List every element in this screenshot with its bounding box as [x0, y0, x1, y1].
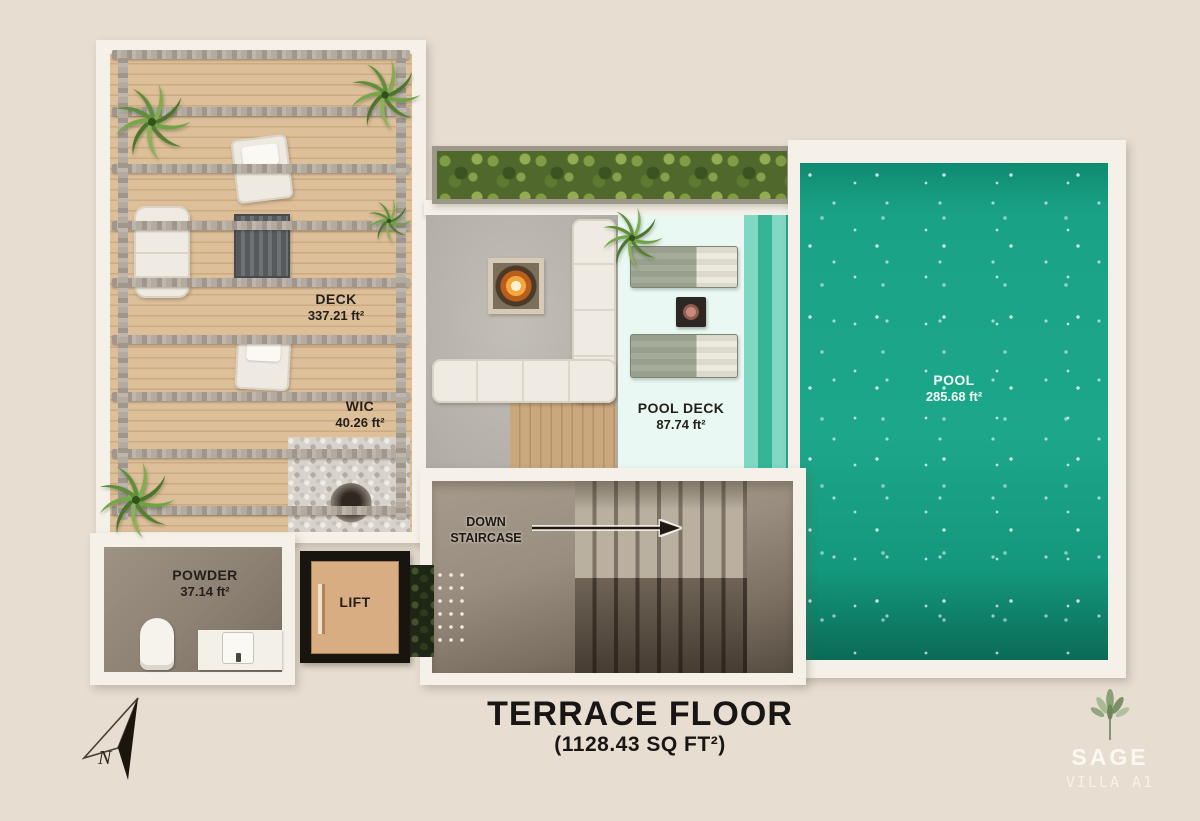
fire-pit: [488, 258, 544, 314]
plan-title-block: TERRACE FLOOR (1128.43 SQ FT²): [390, 697, 890, 757]
faucet: [236, 653, 241, 662]
page-title: TERRACE FLOOR: [390, 697, 890, 733]
palm-icon: [366, 198, 412, 244]
palm-icon: [348, 58, 422, 132]
hedge-planter: [432, 146, 792, 204]
sage-plant-icon: [1087, 688, 1133, 742]
pool-name: POOL: [800, 372, 1108, 389]
gravel-fire-bowl: [330, 483, 372, 525]
wic-label: WIC 40.26 ft²: [300, 398, 420, 430]
side-planter: [410, 565, 434, 657]
lift-label: LIFT: [300, 594, 410, 611]
wic-area: 40.26 ft²: [300, 415, 420, 430]
pool-area: 285.68 ft²: [800, 389, 1108, 404]
floor-plan-canvas: DECK 337.21 ft² WIC 40.26 ft² POOL DECK …: [0, 0, 1200, 821]
fire-pit-flame: [493, 263, 539, 309]
vanity-counter: [198, 630, 282, 670]
sink: [222, 632, 254, 664]
pool-deck-name: POOL DECK: [618, 400, 744, 417]
staircase-name: STAIRCASE: [444, 530, 528, 546]
palm-icon: [96, 460, 176, 540]
wic-name: WIC: [300, 398, 420, 415]
north-arrow-icon: N: [78, 692, 162, 780]
lift-name: LIFT: [300, 594, 410, 611]
deck-area: 337.21 ft²: [276, 308, 396, 323]
palm-icon: [112, 82, 192, 162]
deck-label: DECK 337.21 ft²: [276, 291, 396, 323]
brand-name: SAGE: [1050, 744, 1170, 771]
powder-label: POWDER 37.14 ft²: [130, 567, 280, 599]
staircase-label: DOWN STAIRCASE: [444, 514, 528, 547]
toilet: [140, 618, 174, 670]
page-title-area: (1128.43 SQ FT²): [390, 733, 890, 757]
powder-name: POWDER: [130, 567, 280, 584]
palm-icon: [600, 206, 664, 270]
stair-treads-lower: [575, 578, 747, 673]
powder-area: 37.14 ft²: [130, 584, 280, 599]
staircase-direction: DOWN: [444, 514, 528, 530]
brand-unit: VILLA A1: [1050, 773, 1170, 791]
pergola-beam: [112, 164, 410, 173]
pool-lounge-chair-2: [630, 334, 738, 378]
pergola-beam: [112, 278, 410, 287]
north-letter: N: [97, 747, 113, 769]
deck-name: DECK: [276, 291, 396, 308]
pool-side-table: [676, 297, 706, 327]
lounge-sofa-horizontal: [432, 359, 616, 403]
down-arrow-icon: [530, 519, 682, 537]
chair-pillow: [246, 342, 281, 362]
brand-logo: SAGE VILLA A1: [1050, 688, 1170, 791]
pergola-beam: [112, 449, 410, 458]
pool-deck-label: POOL DECK 87.74 ft²: [618, 400, 744, 432]
pool-label: POOL 285.68 ft²: [800, 372, 1108, 404]
pool-water: [800, 163, 1108, 660]
pergola-beam: [112, 335, 410, 344]
floor-dot-pattern: [437, 572, 464, 650]
pool-deck-area: 87.74 ft²: [618, 417, 744, 432]
